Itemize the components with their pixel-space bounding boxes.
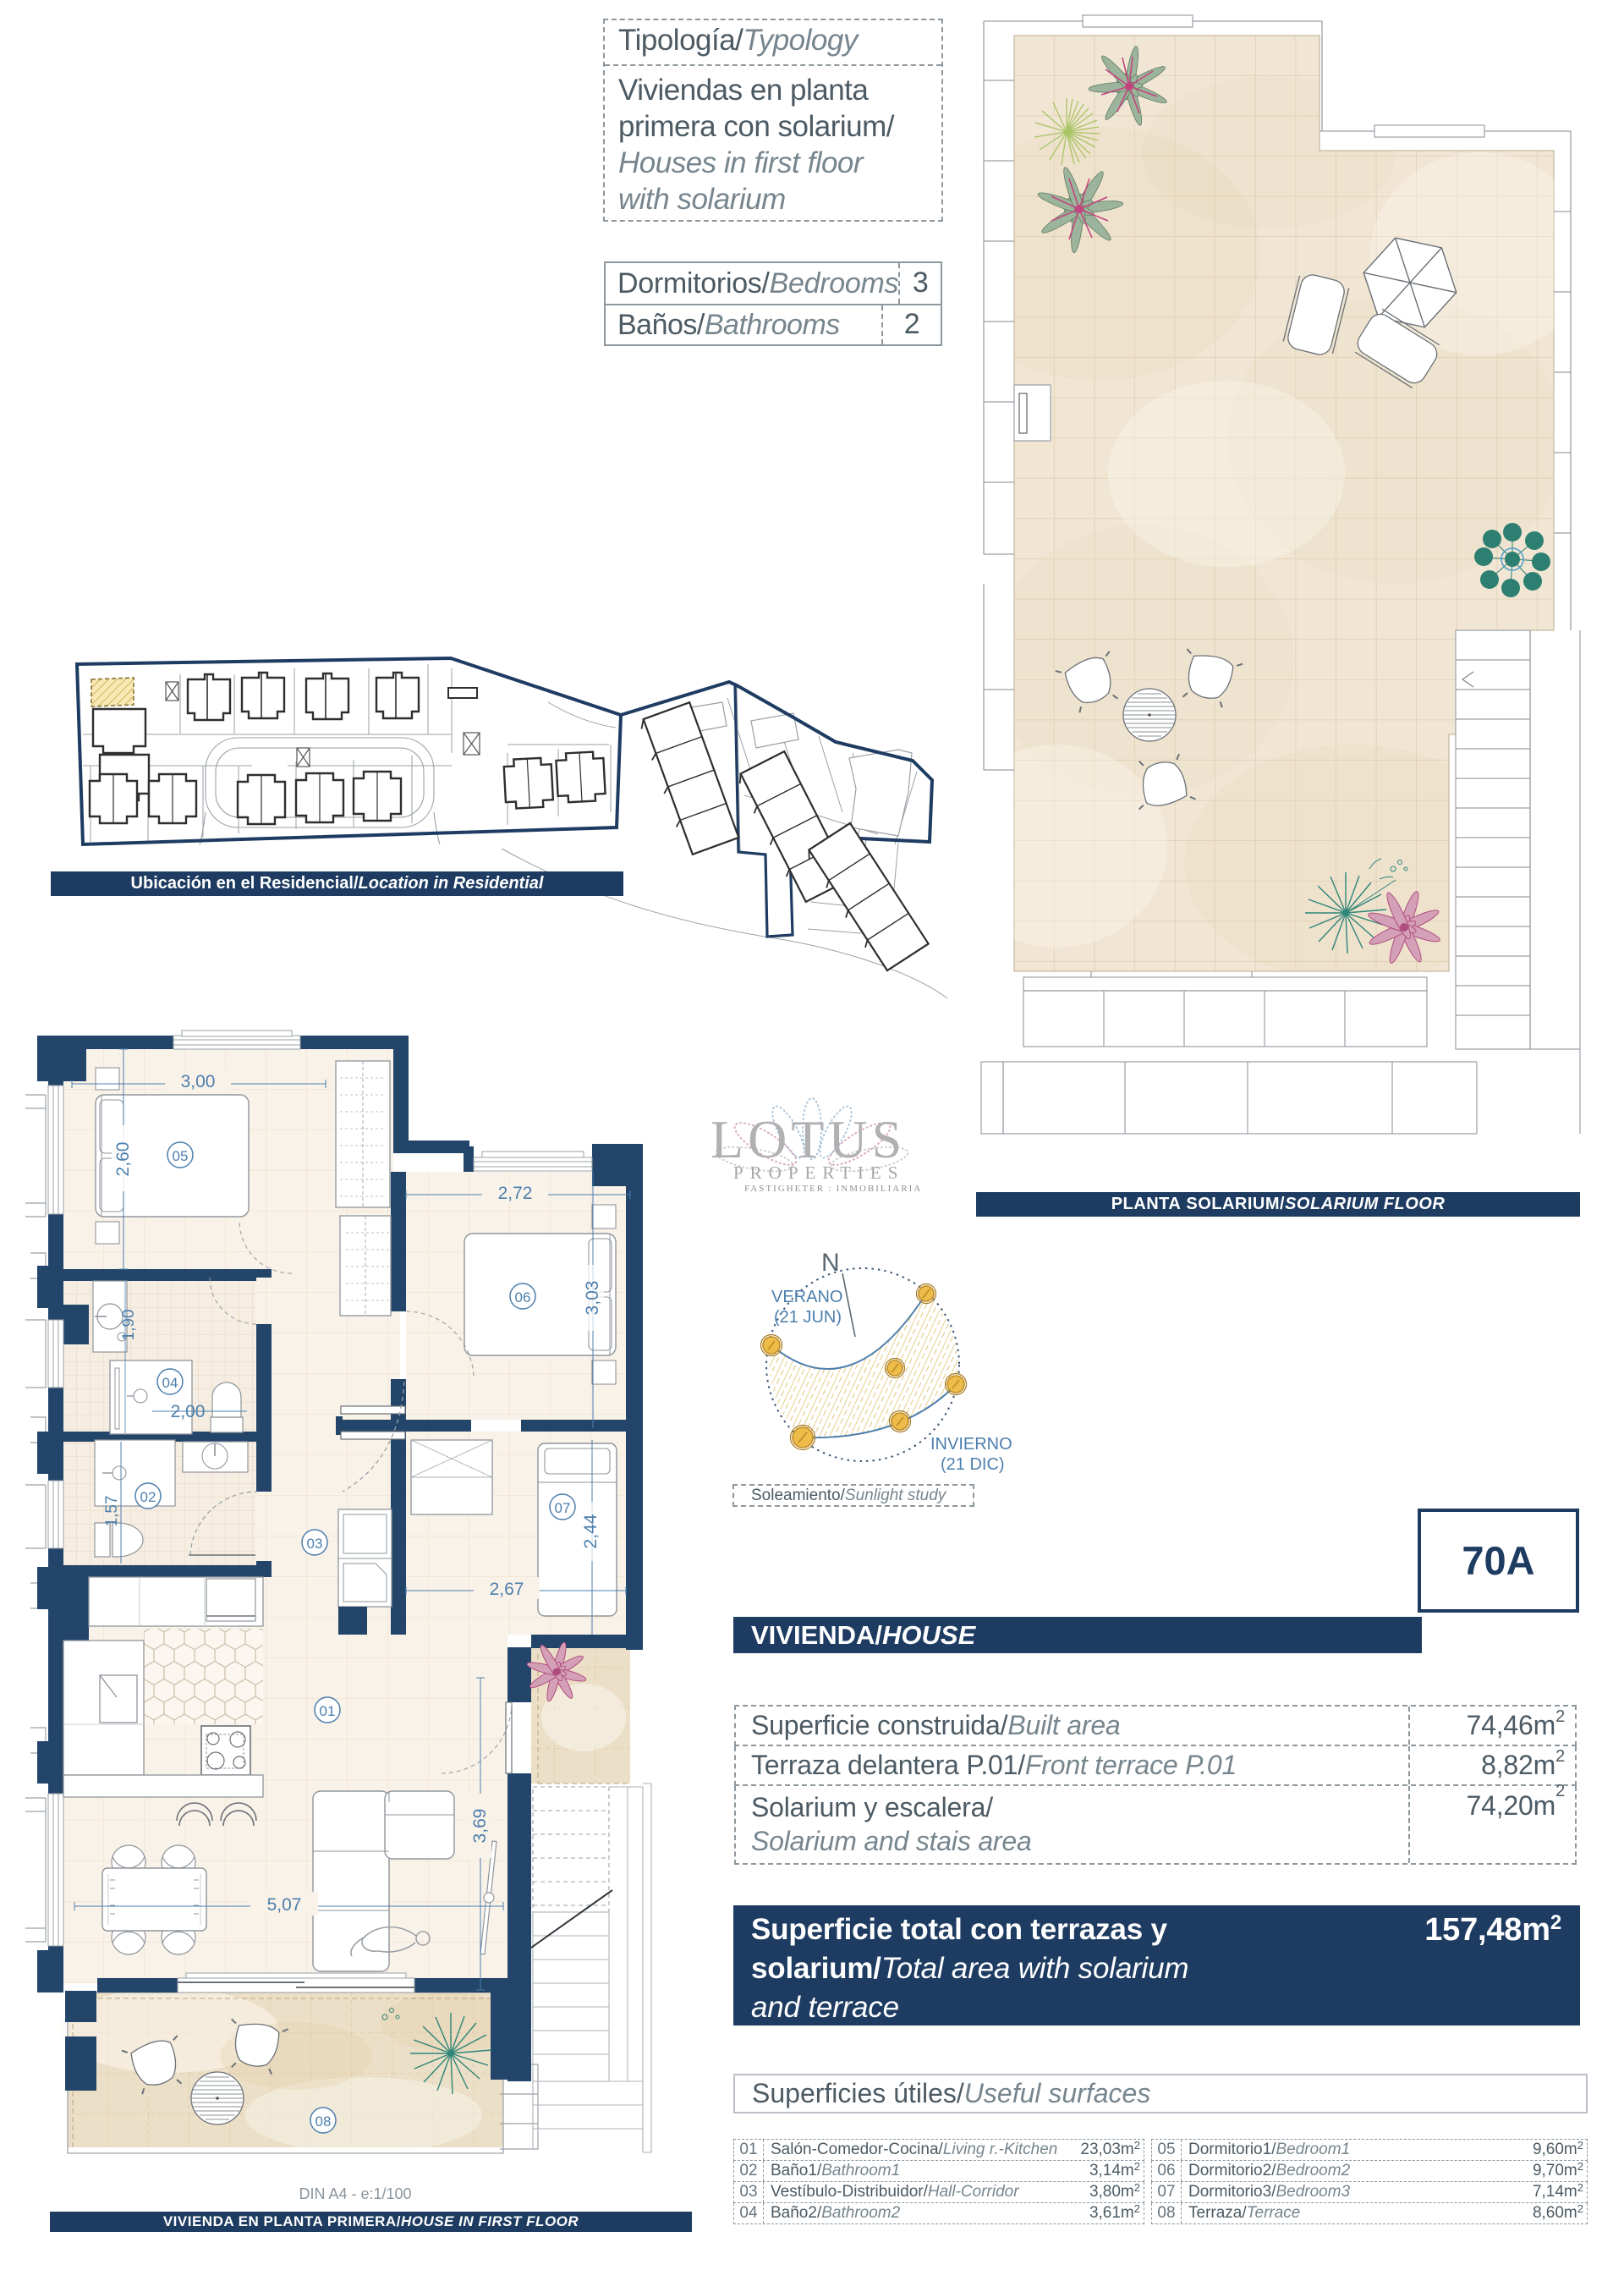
svg-text:08: 08 [315, 2113, 332, 2130]
svg-text:3,00: 3,00 [181, 1072, 216, 1091]
svg-text:07: 07 [555, 1500, 571, 1516]
svg-text:(21 DIC): (21 DIC) [941, 1455, 1005, 1474]
svg-text:06: 06 [515, 1289, 531, 1305]
svg-text:(21 JUN): (21 JUN) [774, 1308, 842, 1327]
svg-text:N: N [821, 1249, 840, 1277]
svg-text:1,90: 1,90 [120, 1310, 138, 1341]
svg-text:1,57: 1,57 [103, 1496, 121, 1527]
svg-text:02: 02 [140, 1489, 156, 1505]
svg-text:3,69: 3,69 [470, 1809, 490, 1844]
svg-text:INVIERNO: INVIERNO [930, 1435, 1012, 1454]
svg-text:03: 03 [307, 1536, 323, 1552]
svg-text:04: 04 [162, 1375, 178, 1391]
svg-text:2,00: 2,00 [171, 1402, 206, 1421]
svg-text:2,60: 2,60 [113, 1142, 133, 1177]
svg-text:05: 05 [173, 1148, 189, 1164]
svg-text:2,44: 2,44 [581, 1514, 601, 1548]
svg-text:VERANO: VERANO [771, 1288, 842, 1306]
svg-text:2,72: 2,72 [498, 1184, 533, 1203]
svg-text:01: 01 [320, 1703, 336, 1719]
svg-text:2,67: 2,67 [490, 1580, 524, 1599]
svg-text:5,07: 5,07 [267, 1895, 302, 1915]
svg-text:3,03: 3,03 [583, 1281, 602, 1316]
